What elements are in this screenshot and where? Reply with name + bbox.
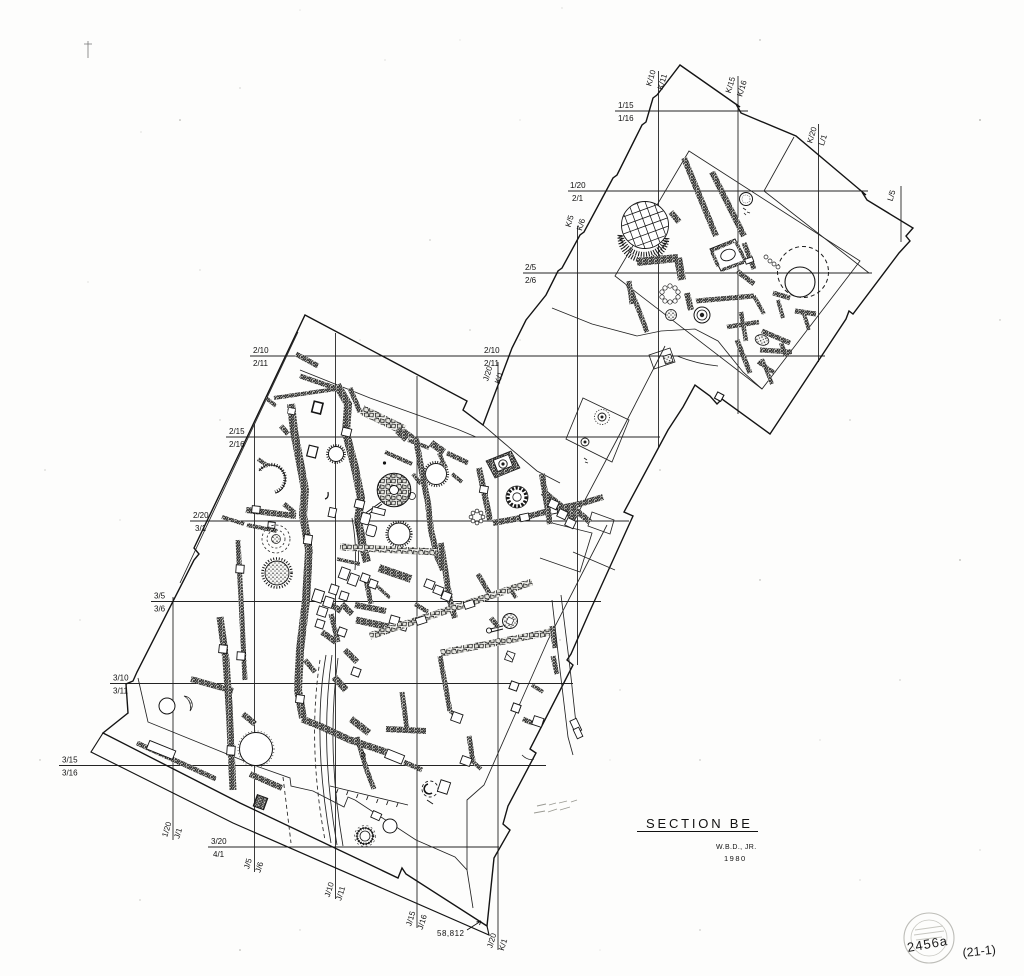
svg-text:2/10: 2/10 — [253, 346, 269, 355]
svg-text:2/5: 2/5 — [525, 263, 537, 272]
svg-text:1/20: 1/20 — [570, 181, 586, 190]
svg-text:W.B.D., JR.: W.B.D., JR. — [716, 844, 757, 851]
svg-text:3/15: 3/15 — [62, 756, 78, 765]
svg-text:3/6: 3/6 — [154, 605, 166, 614]
svg-text:3/5: 3/5 — [154, 592, 166, 601]
svg-text:2/10: 2/10 — [484, 346, 500, 355]
svg-text:3/16: 3/16 — [62, 769, 78, 778]
svg-text:3/20: 3/20 — [211, 837, 227, 846]
svg-text:58,812: 58,812 — [437, 929, 465, 938]
svg-text:3/10: 3/10 — [113, 674, 129, 683]
svg-text:2/15: 2/15 — [229, 427, 245, 436]
svg-text:2/1: 2/1 — [572, 194, 584, 203]
svg-text:1/16: 1/16 — [618, 114, 634, 123]
svg-text:1980: 1980 — [724, 854, 747, 863]
svg-text:SECTION BE: SECTION BE — [646, 816, 753, 831]
svg-text:3/1: 3/1 — [195, 524, 207, 533]
svg-text:3/11: 3/11 — [113, 687, 129, 696]
svg-text:4/1: 4/1 — [213, 850, 225, 859]
svg-text:2/6: 2/6 — [525, 276, 537, 285]
svg-text:2/16: 2/16 — [229, 440, 245, 449]
svg-text:1/15: 1/15 — [618, 101, 634, 110]
svg-text:2/11: 2/11 — [253, 359, 269, 368]
svg-text:2/20: 2/20 — [193, 511, 209, 520]
